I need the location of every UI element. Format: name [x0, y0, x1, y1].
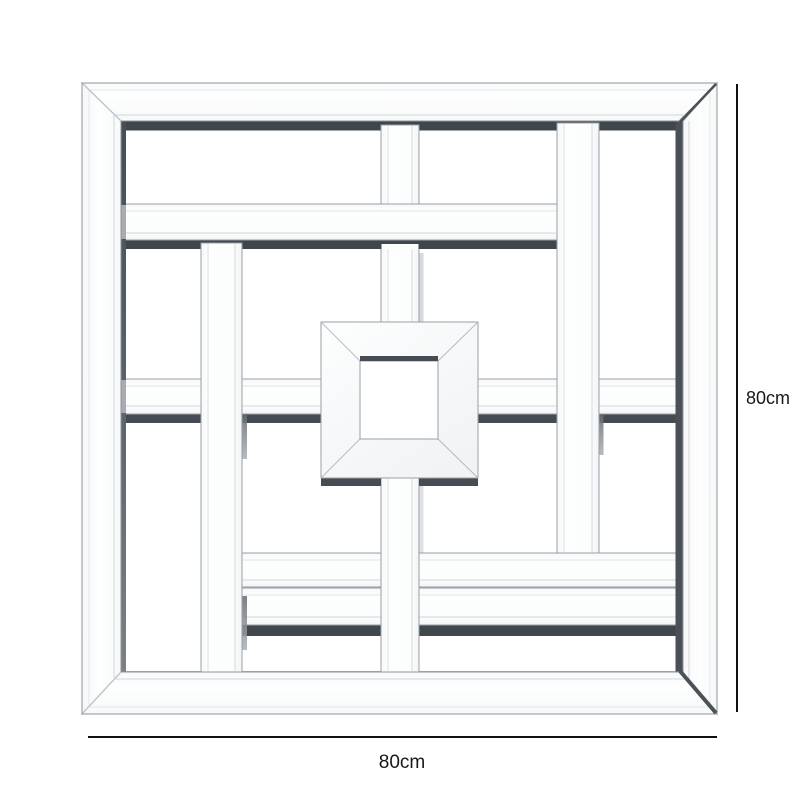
svg-text:80cm: 80cm [746, 388, 790, 408]
svg-text:80cm: 80cm [379, 752, 425, 773]
